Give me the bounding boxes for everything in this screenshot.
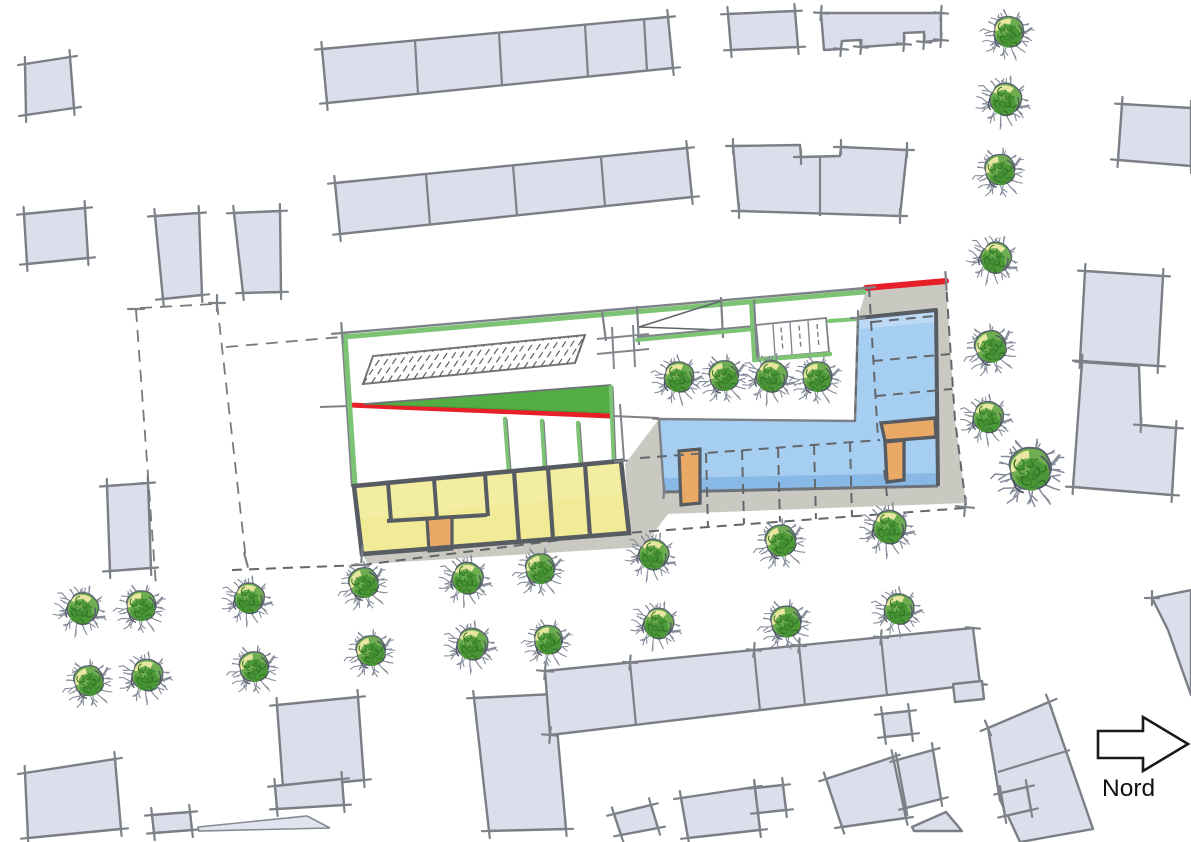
svg-text:Nord: Nord bbox=[1102, 775, 1155, 802]
